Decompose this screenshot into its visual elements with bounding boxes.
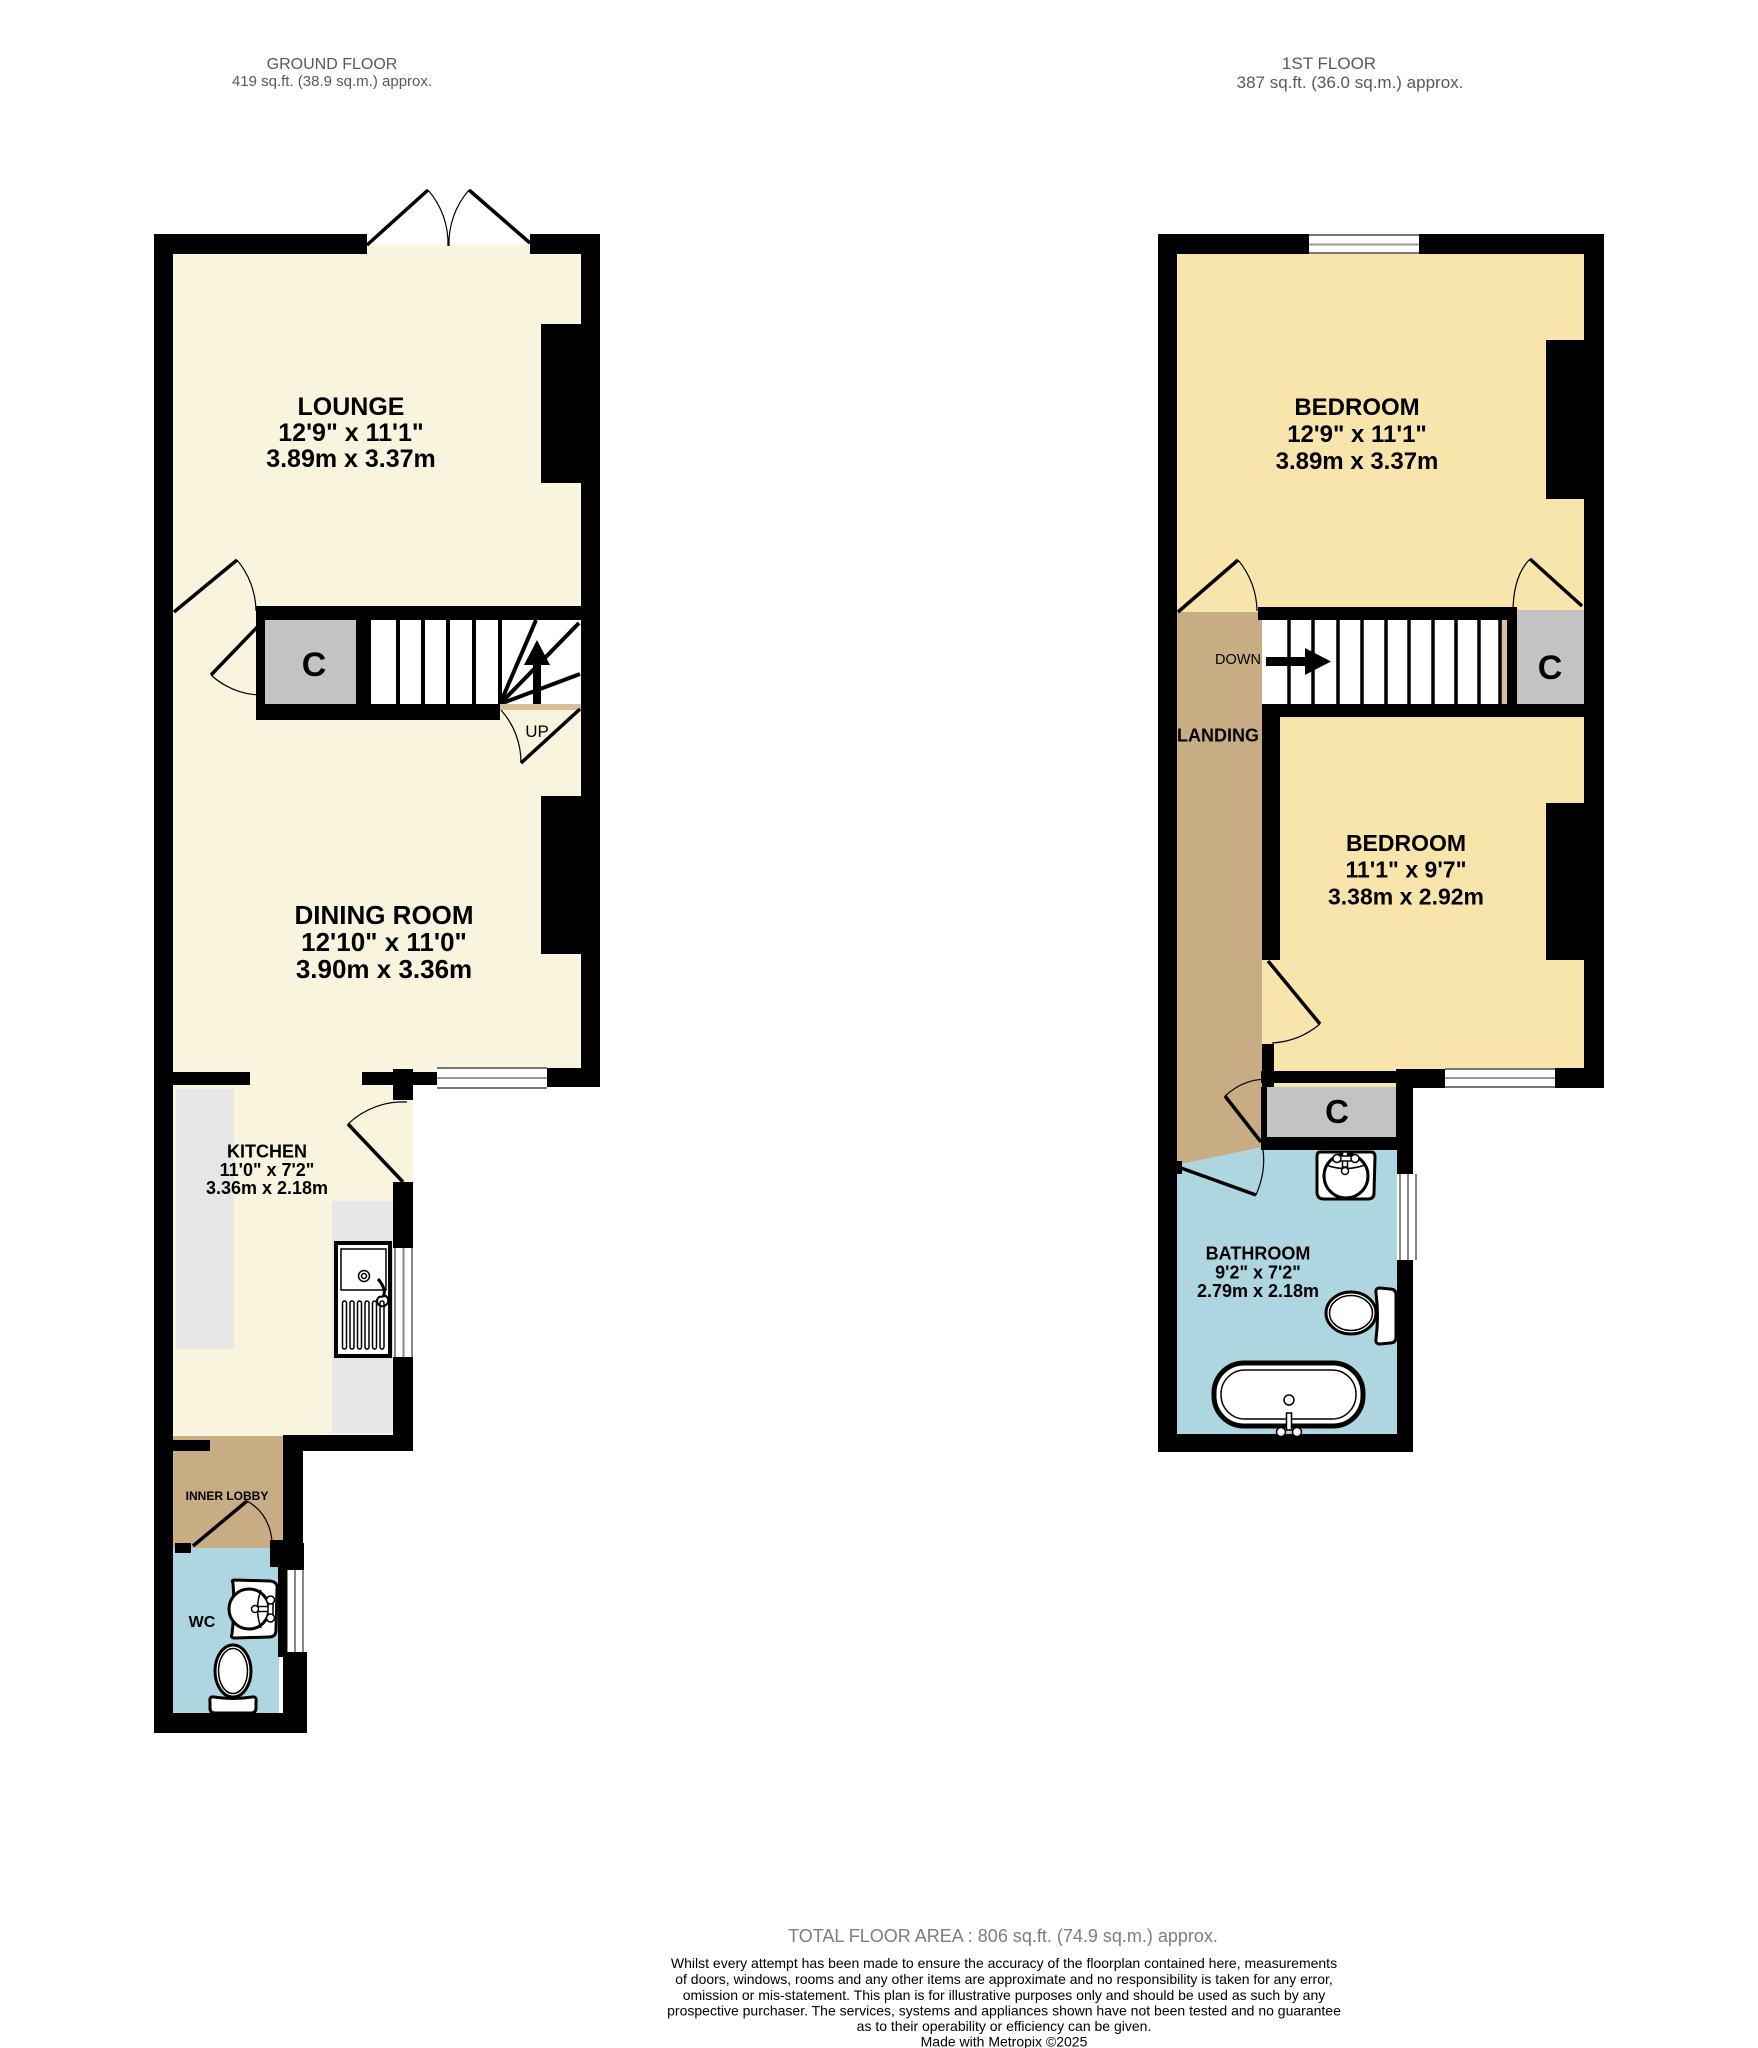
svg-text:11'0" x 7'2": 11'0" x 7'2": [220, 1160, 315, 1180]
svg-text:387 sq.ft. (36.0 sq.m.) approx: 387 sq.ft. (36.0 sq.m.) approx.: [1237, 73, 1464, 92]
svg-text:LANDING: LANDING: [1177, 726, 1259, 746]
svg-text:DINING ROOM: DINING ROOM: [294, 900, 473, 930]
svg-text:GROUND FLOOR: GROUND FLOOR: [267, 56, 398, 73]
svg-text:WC: WC: [189, 1614, 216, 1631]
svg-text:prospective purchaser. The ser: prospective purchaser. The services, sys…: [667, 2003, 1341, 2019]
svg-text:3.89m x 3.37m: 3.89m x 3.37m: [1276, 448, 1439, 475]
svg-text:C: C: [1325, 1093, 1349, 1130]
svg-text:UP: UP: [525, 722, 549, 741]
svg-text:419 sq.ft. (38.9 sq.m.) approx: 419 sq.ft. (38.9 sq.m.) approx.: [232, 73, 432, 90]
svg-text:C: C: [302, 646, 327, 684]
svg-text:3.38m x 2.92m: 3.38m x 2.92m: [1328, 884, 1484, 910]
svg-text:of doors, windows, rooms and a: of doors, windows, rooms and any other i…: [675, 1971, 1333, 1987]
svg-text:2.79m x 2.18m: 2.79m x 2.18m: [1197, 1281, 1319, 1301]
svg-text:3.36m x 2.18m: 3.36m x 2.18m: [206, 1178, 328, 1198]
svg-text:DOWN: DOWN: [1215, 652, 1261, 668]
svg-text:omission or mis-statement. Thi: omission or mis-statement. This plan is …: [683, 1987, 1326, 2003]
svg-text:KITCHEN: KITCHEN: [227, 1142, 307, 1162]
svg-text:BEDROOM: BEDROOM: [1294, 394, 1419, 421]
svg-text:12'9" x 11'1": 12'9" x 11'1": [278, 419, 423, 447]
svg-text:12'10" x 11'0": 12'10" x 11'0": [301, 927, 467, 957]
svg-text:3.89m x 3.37m: 3.89m x 3.37m: [266, 445, 436, 473]
svg-text:C: C: [1538, 649, 1563, 687]
svg-text:TOTAL FLOOR AREA : 806 sq.ft.: TOTAL FLOOR AREA : 806 sq.ft. (74.9 sq.m…: [788, 1926, 1218, 1946]
svg-text:as to their operability or eff: as to their operability or efficiency ca…: [857, 2018, 1152, 2034]
svg-text:INNER LOBBY: INNER LOBBY: [186, 1489, 269, 1503]
svg-text:1ST FLOOR: 1ST FLOOR: [1282, 54, 1376, 73]
svg-text:Made with Metropix ©2025: Made with Metropix ©2025: [921, 2034, 1088, 2048]
svg-text:11'1" x 9'7": 11'1" x 9'7": [1345, 857, 1466, 883]
svg-text:BEDROOM: BEDROOM: [1346, 830, 1466, 856]
svg-text:12'9" x 11'1": 12'9" x 11'1": [1287, 421, 1427, 448]
svg-text:9'2" x 7'2": 9'2" x 7'2": [1215, 1262, 1301, 1282]
svg-text:Whilst every attempt has been: Whilst every attempt has been made to en…: [671, 1955, 1337, 1971]
svg-text:LOUNGE: LOUNGE: [298, 393, 405, 421]
svg-text:BATHROOM: BATHROOM: [1206, 1244, 1311, 1264]
svg-text:3.90m x 3.36m: 3.90m x 3.36m: [296, 954, 472, 984]
